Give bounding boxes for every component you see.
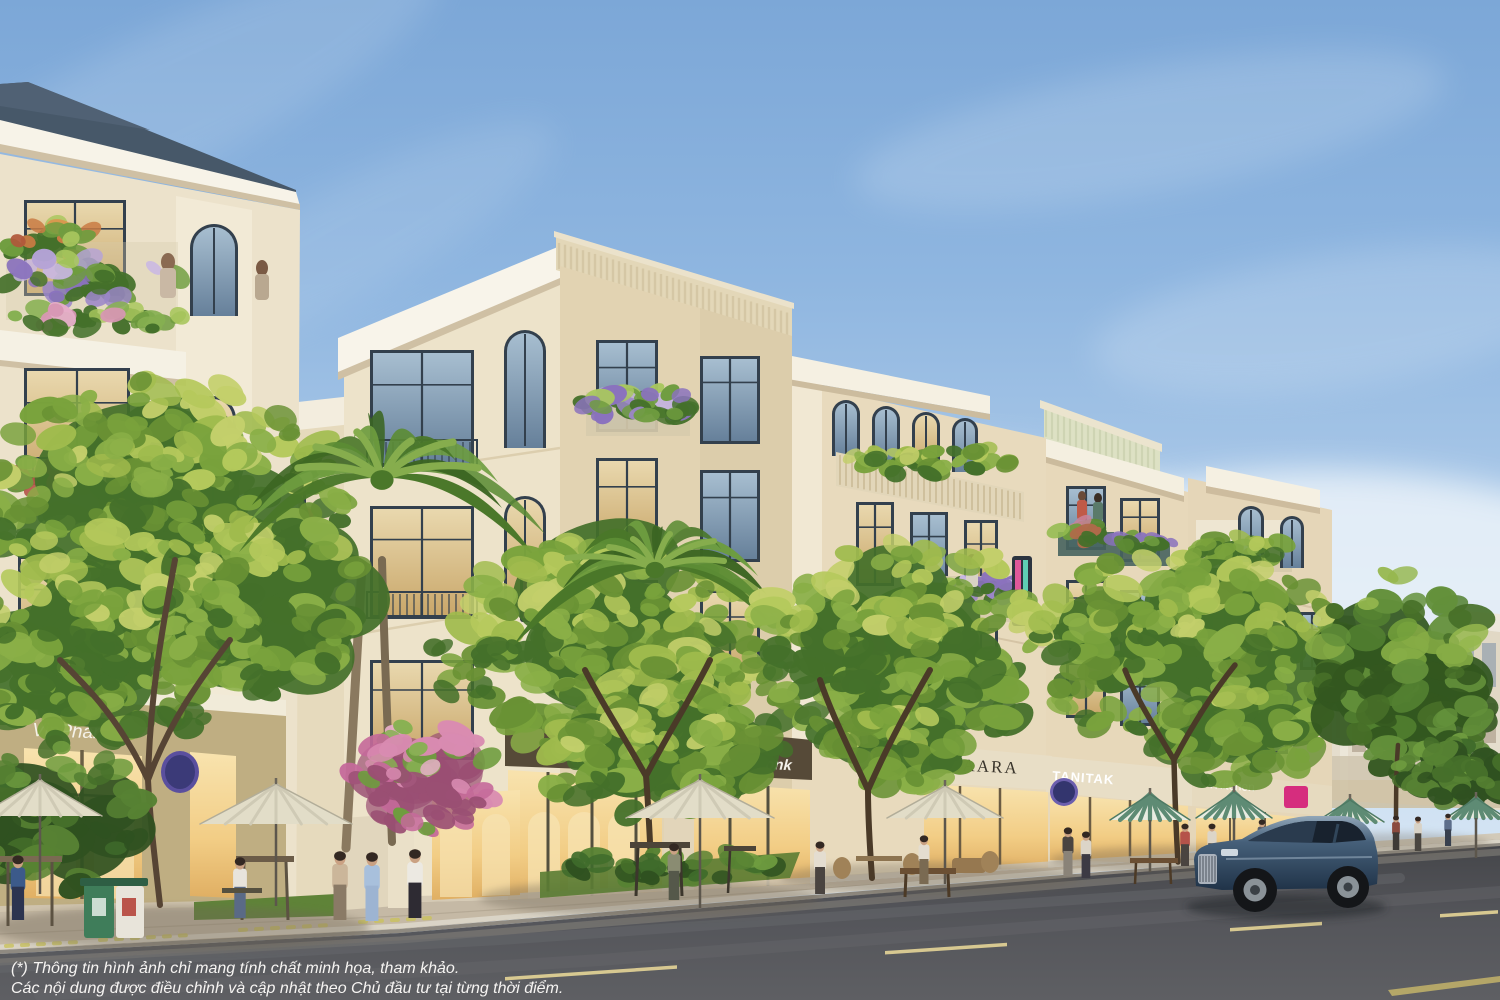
svg-text:(*) Thông tin hình ảnh chỉ man: (*) Thông tin hình ảnh chỉ mang tính chấ… <box>11 960 459 977</box>
svg-text:Các nội dung được điều chỉnh v: Các nội dung được điều chỉnh và cập nhật… <box>11 979 563 997</box>
